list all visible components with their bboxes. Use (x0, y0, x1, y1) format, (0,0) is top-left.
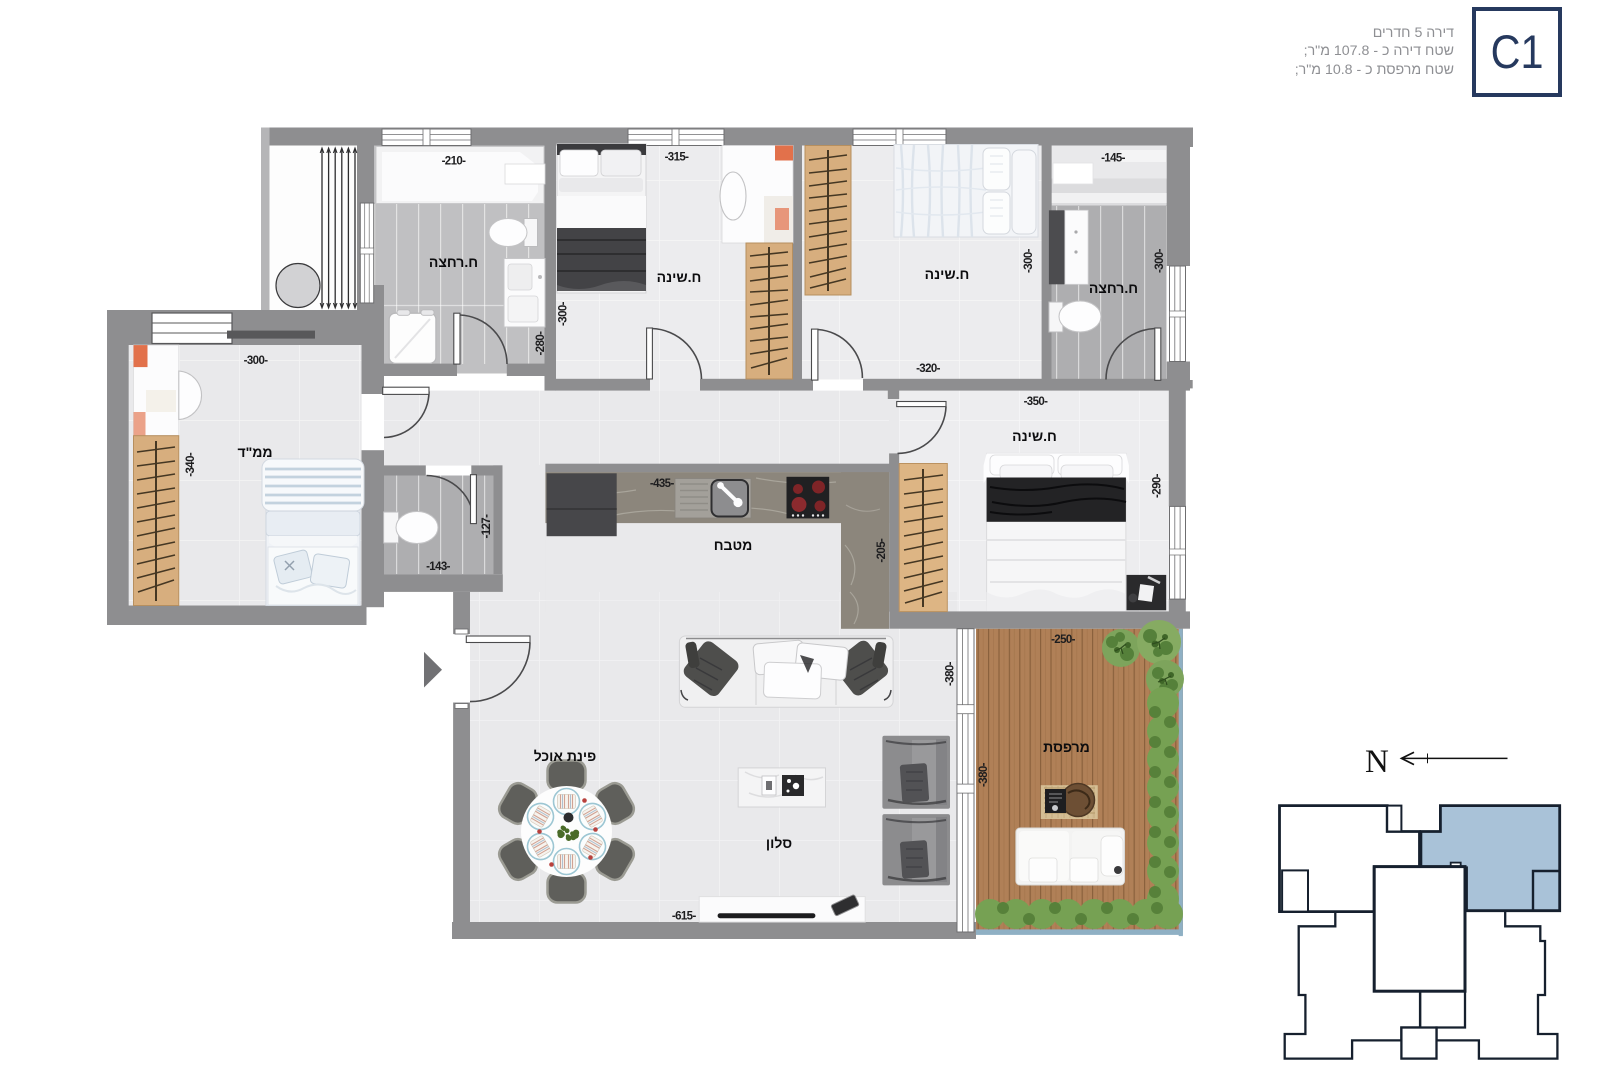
svg-text:מרפסת: מרפסת (1043, 739, 1090, 755)
svg-text:-320-: -320- (916, 363, 941, 375)
svg-text:-435-: -435- (650, 478, 675, 490)
svg-text:ח.שינה: ח.שינה (1012, 428, 1057, 444)
svg-text:-615-: -615- (672, 911, 697, 923)
svg-text:-280-: -280- (535, 331, 547, 356)
svg-text:ח.רחצה: ח.רחצה (429, 254, 478, 270)
svg-text:ח.רחצה: ח.רחצה (1089, 280, 1138, 296)
svg-text:-205-: -205- (876, 538, 888, 563)
svg-text:-300-: -300- (558, 301, 570, 326)
svg-text:ח.שינה: ח.שינה (925, 266, 970, 282)
svg-text:מטבח: מטבח (714, 537, 753, 553)
svg-text:-127-: -127- (481, 514, 493, 539)
svg-text:-380-: -380- (978, 762, 990, 787)
svg-text:-300-: -300- (1154, 248, 1166, 273)
svg-text:-380-: -380- (944, 661, 956, 686)
svg-text:-210-: -210- (442, 156, 467, 168)
svg-text:N: N (1365, 744, 1389, 780)
svg-text:-300-: -300- (1023, 248, 1035, 273)
svg-text:-250-: -250- (1051, 634, 1076, 646)
svg-text:פינת אוכל: פינת אוכל (534, 748, 597, 764)
svg-text:-340-: -340- (185, 452, 197, 477)
svg-text:-350-: -350- (1024, 396, 1049, 408)
svg-text:-290-: -290- (1151, 473, 1163, 498)
svg-text:-315-: -315- (665, 152, 690, 164)
svg-text:-145-: -145- (1101, 153, 1126, 165)
svg-text:-300-: -300- (244, 355, 269, 367)
svg-text:-143-: -143- (426, 561, 451, 573)
svg-text:ח.שינה: ח.שינה (657, 269, 702, 285)
svg-text:סלון: סלון (766, 835, 792, 851)
svg-text:ממ"ד: ממ"ד (237, 444, 272, 460)
